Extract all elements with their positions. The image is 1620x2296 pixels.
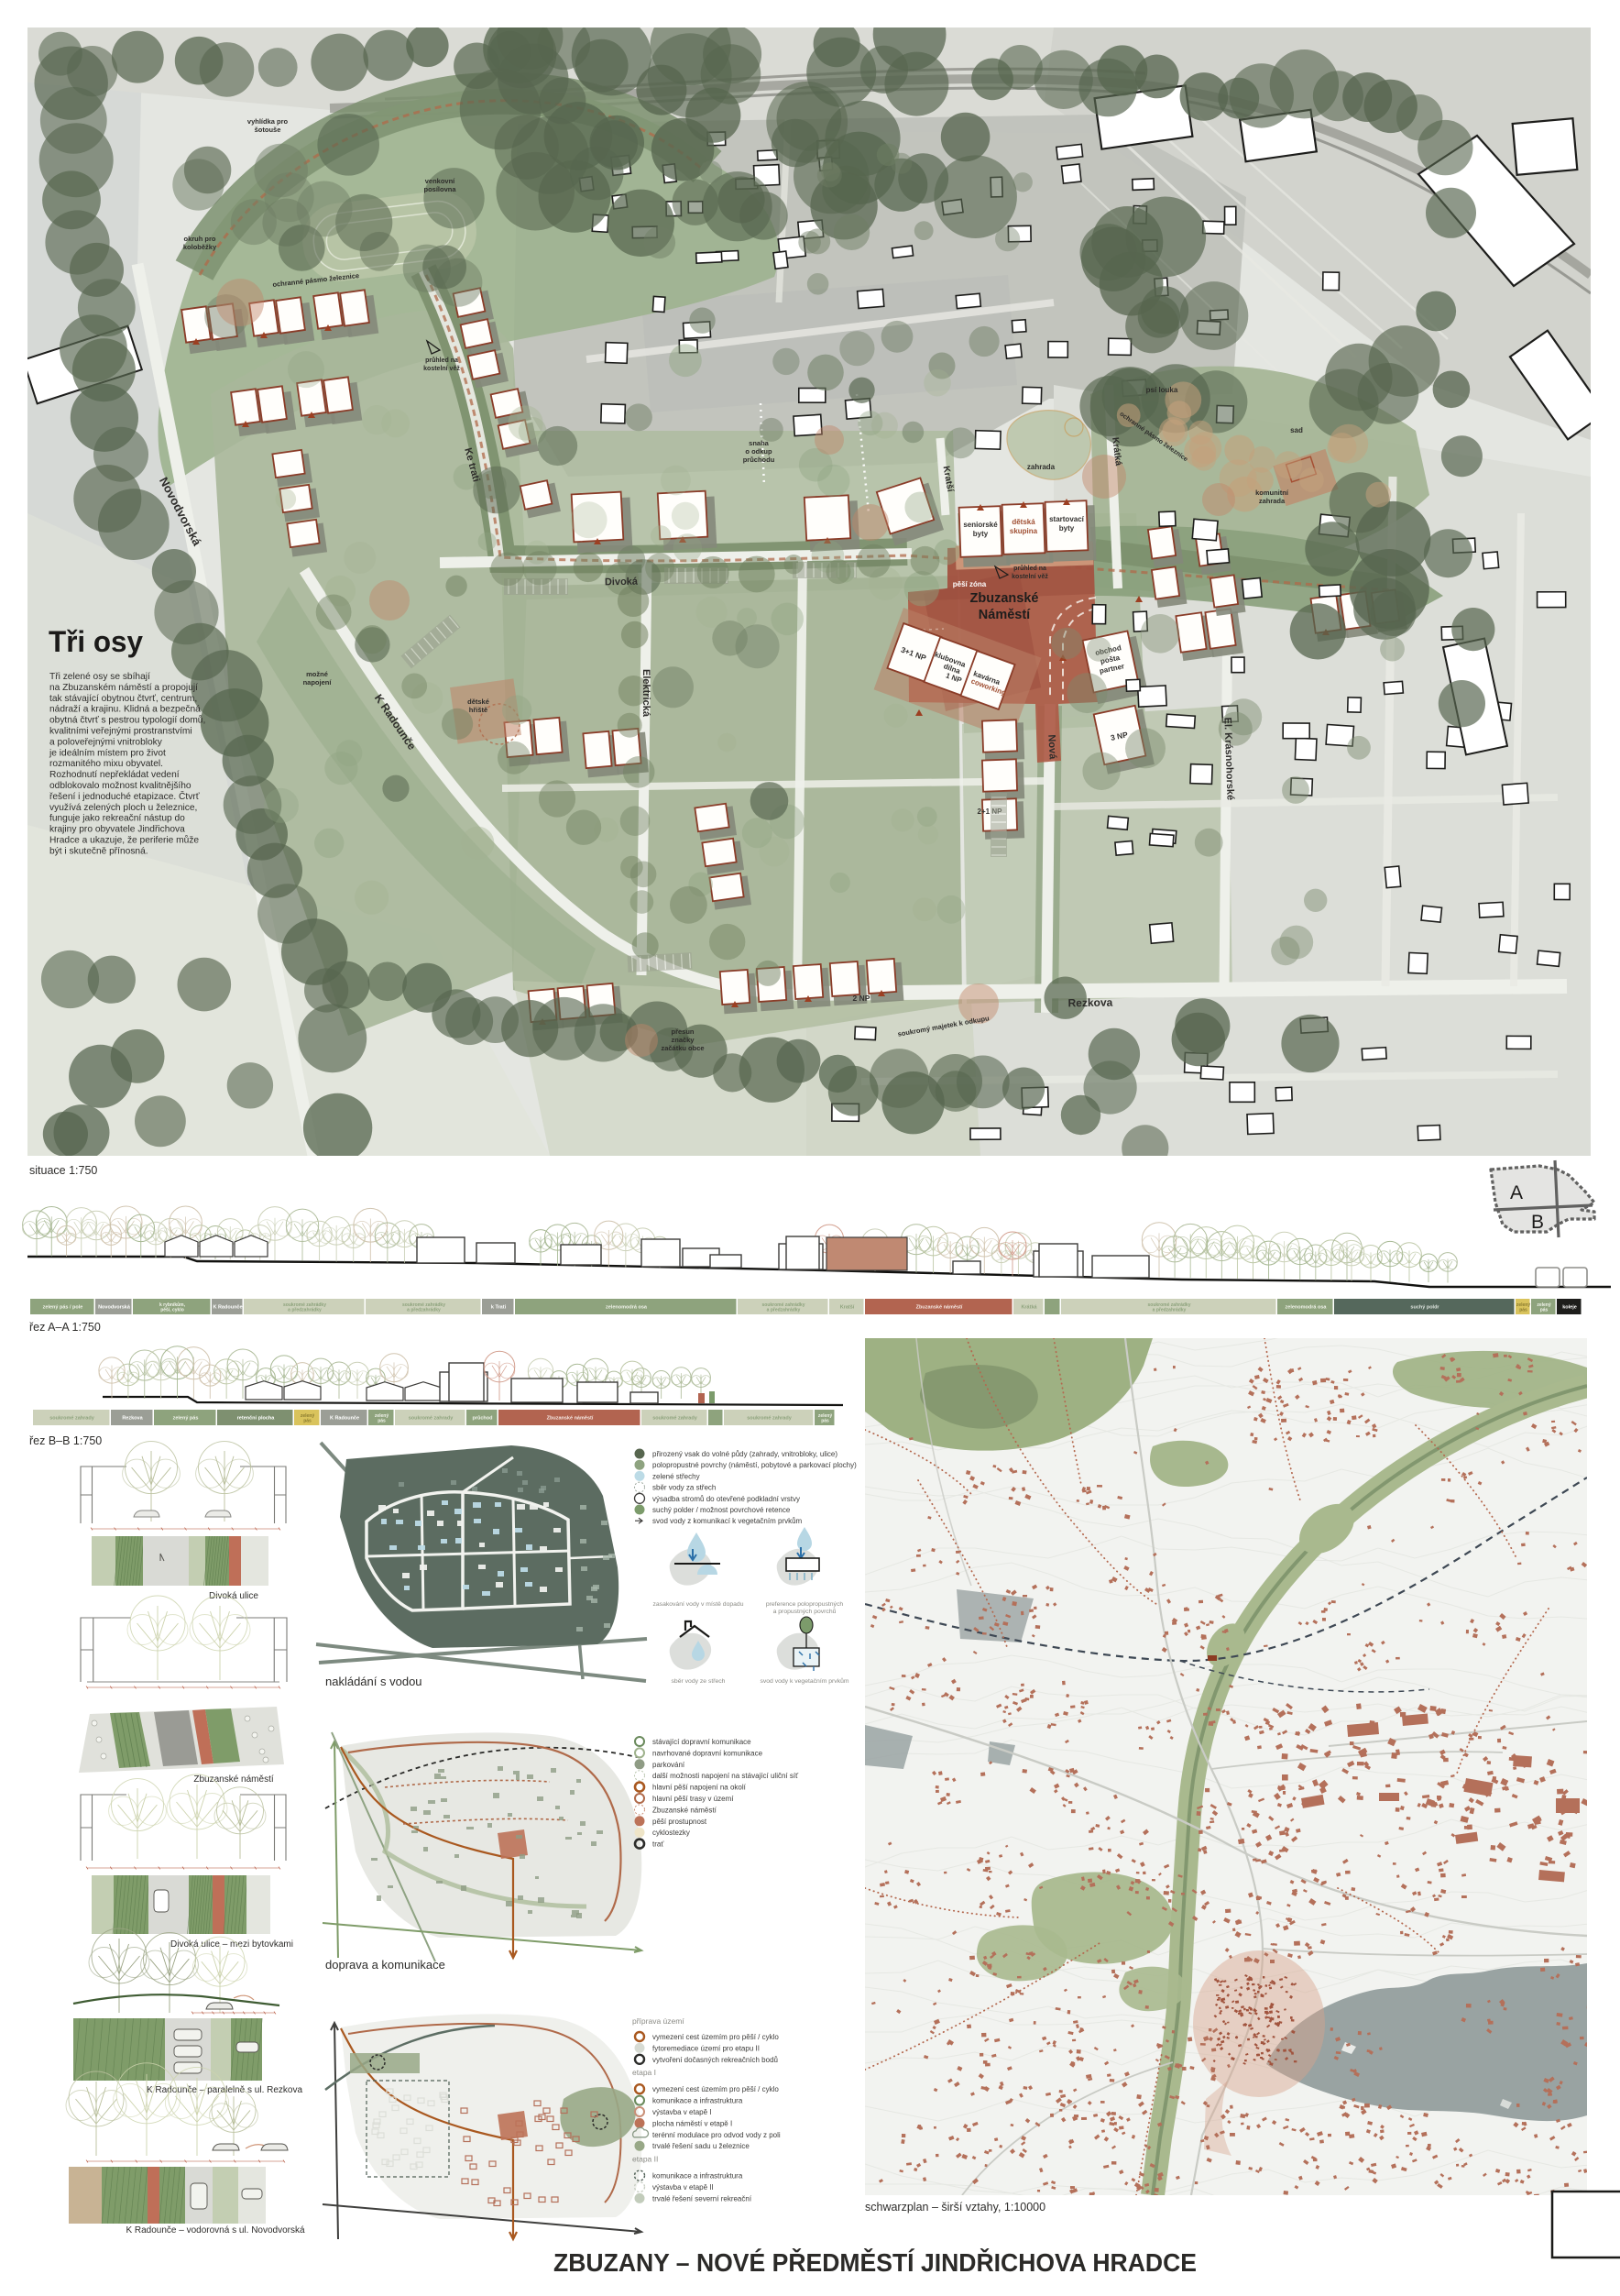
svg-text:být i skutečně přínosná.: být i skutečně přínosná.: [49, 846, 148, 856]
svg-text:zelenomodrá osa: zelenomodrá osa: [1286, 1305, 1328, 1311]
svg-text:Elektrická: Elektrická: [640, 669, 651, 718]
svg-text:a poloveřejnými vnitrobloky: a poloveřejnými vnitrobloky: [49, 737, 163, 747]
svg-text:navrhované dopravní komunikace: navrhované dopravní komunikace: [652, 1749, 763, 1757]
svg-text:seniorské: seniorské: [963, 521, 998, 529]
svg-text:tak stávající obytnou čtvrť, c: tak stávající obytnou čtvrť, centrum,: [49, 694, 197, 704]
svg-text:psí louka: psí louka: [1146, 386, 1178, 394]
svg-text:pás: pás: [303, 1419, 312, 1424]
svg-text:K Radounče – vodorovná s ul. N: K Radounče – vodorovná s ul. Novodvorská: [126, 2225, 305, 2236]
svg-text:Tři osy: Tři osy: [49, 625, 143, 658]
svg-text:průhled na: průhled na: [425, 357, 458, 364]
svg-text:funguje jako rekreační nástup: funguje jako rekreační nástup do: [49, 814, 185, 824]
svg-text:Novodvorská: Novodvorská: [98, 1305, 131, 1311]
svg-text:a předzahrádky: a předzahrádky: [767, 1308, 801, 1313]
svg-text:svod vody z komunikací k veget: svod vody z komunikací k vegetačním prvk…: [652, 1517, 803, 1525]
svg-text:příprava území: příprava území: [632, 2016, 684, 2026]
svg-text:zelený pás / pole: zelený pás / pole: [43, 1305, 83, 1311]
svg-text:krajiny pro obyvatele Jindřich: krajiny pro obyvatele Jindřichova: [49, 825, 185, 835]
svg-text:trvalé řešení sadu u železnice: trvalé řešení sadu u železnice: [652, 2142, 750, 2150]
svg-text:průchodu: průchodu: [743, 456, 775, 464]
svg-text:soukromé zahrady: soukromé zahrady: [652, 1416, 698, 1422]
svg-text:Rozhodnutí nepřekládat vedení: Rozhodnutí nepřekládat vedení: [49, 770, 180, 780]
svg-text:k Trati: k Trati: [491, 1305, 507, 1311]
svg-text:cyklostezky: cyklostezky: [652, 1829, 690, 1837]
svg-text:Krátká: Krátká: [1021, 1305, 1037, 1311]
svg-text:suchý poldr: suchý poldr: [1410, 1305, 1439, 1311]
svg-text:a předzahrádky: a předzahrádky: [407, 1308, 441, 1313]
svg-text:odblokovalo možnost kvalitnějš: odblokovalo možnost kvalitnějšího: [49, 781, 192, 791]
svg-text:preference polopropustných: preference polopropustných: [766, 1601, 843, 1608]
svg-text:soukromé zahrady: soukromé zahrady: [747, 1416, 793, 1422]
svg-text:komunikace a infrastruktura: komunikace a infrastruktura: [652, 2097, 743, 2105]
svg-text:snaha: snaha: [749, 439, 770, 447]
svg-text:plocha náměstí v etapě I: plocha náměstí v etapě I: [652, 2119, 732, 2127]
svg-text:řez A–A 1:750: řez A–A 1:750: [29, 1321, 101, 1334]
svg-text:retenční plocha: retenční plocha: [237, 1416, 276, 1422]
svg-text:pás: pás: [1519, 1308, 1527, 1313]
svg-text:sad: sad: [1290, 426, 1303, 434]
svg-text:komunikace a infrastruktura: komunikace a infrastruktura: [652, 2172, 743, 2181]
svg-text:koleje: koleje: [1562, 1305, 1577, 1311]
svg-text:etapa I: etapa I: [632, 2068, 656, 2077]
svg-text:přirozený vsak do volné půdy (: přirozený vsak do volné půdy (zahrady, v…: [652, 1450, 837, 1458]
svg-text:hlavní pěší napojení na okolí: hlavní pěší napojení na okolí: [652, 1784, 747, 1792]
svg-text:průhled na: průhled na: [1013, 565, 1046, 572]
svg-text:venkovní: venkovní: [425, 177, 455, 185]
svg-text:Zbuzanské náměstí: Zbuzanské náměstí: [547, 1416, 594, 1422]
svg-text:hlavní pěší trasy v území: hlavní pěší trasy v území: [652, 1795, 734, 1803]
svg-text:K Radounče: K Radounče: [330, 1416, 359, 1422]
svg-text:přesun: přesun: [671, 1027, 694, 1036]
svg-text:Zbuzanské: Zbuzanské: [970, 591, 1039, 606]
svg-text:pás: pás: [1540, 1308, 1549, 1313]
svg-text:Divoká: Divoká: [605, 577, 639, 588]
svg-text:dětské: dětské: [467, 698, 489, 706]
svg-text:Náměstí: Náměstí: [979, 608, 1031, 622]
svg-text:Tři zelené osy se sbíhají: Tři zelené osy se sbíhají: [49, 672, 150, 682]
svg-text:využívá zelených ploch u želez: využívá zelených ploch u železnice,: [49, 803, 197, 813]
svg-text:obytná čtvrť s pestrou typolog: obytná čtvrť s pestrou typologií domů,: [49, 715, 205, 726]
svg-text:zelený pás: zelený pás: [173, 1416, 199, 1422]
svg-text:2 NP: 2 NP: [853, 994, 870, 1003]
svg-text:a propustných povrchů: a propustných povrchů: [773, 1608, 837, 1615]
svg-text:schwarzplan – širší vztahy, 1:: schwarzplan – širší vztahy, 1:10000: [865, 2201, 1045, 2214]
svg-text:K Radounče: K Radounče: [213, 1305, 242, 1311]
svg-text:ZBUZANY – NOVÉ PŘEDMĚSTÍ JINDŘ: ZBUZANY – NOVÉ PŘEDMĚSTÍ JINDŘICHOVA HRA…: [553, 2248, 1197, 2277]
svg-text:doprava a komunikace: doprava a komunikace: [325, 1958, 445, 1972]
svg-text:řešení i jednoduché etapizace.: řešení i jednoduché etapizace. Čtvrť: [49, 790, 200, 802]
svg-text:a předzahrádky: a předzahrádky: [288, 1308, 322, 1313]
svg-text:vytvoření dočasných rekreačníc: vytvoření dočasných rekreačních bodů: [652, 2056, 778, 2064]
svg-text:komunitní: komunitní: [1255, 489, 1289, 497]
svg-text:koloběžky: koloběžky: [183, 243, 217, 251]
svg-text:zasakování vody v místě dopadu: zasakování vody v místě dopadu: [653, 1601, 744, 1608]
svg-text:nádraží a krajinu. Klidná a be: nádraží a krajinu. Klidná a bezpečná: [49, 705, 201, 715]
svg-text:možné: možné: [306, 670, 328, 678]
svg-text:a předzahrádky: a předzahrádky: [1153, 1308, 1187, 1313]
svg-text:zahrada: zahrada: [1027, 463, 1056, 471]
svg-text:stávající dopravní komunikace: stávající dopravní komunikace: [652, 1738, 751, 1746]
svg-text:pěší, cyklo: pěší, cyklo: [160, 1308, 184, 1313]
svg-text:fytoremediace území pro etapu: fytoremediace území pro etapu II: [652, 2044, 760, 2052]
svg-text:terénní modulace pro odvod vod: terénní modulace pro odvod vody z poli: [652, 2131, 781, 2139]
svg-text:polopropustné povrchy (náměstí: polopropustné povrchy (náměstí, pobytové…: [652, 1461, 857, 1469]
svg-text:napojení: napojení: [303, 678, 333, 687]
svg-text:Zbuzanské náměstí: Zbuzanské náměstí: [652, 1806, 717, 1814]
svg-text:zahrada: zahrada: [1259, 497, 1286, 505]
svg-text:Kratší: Kratší: [840, 1305, 855, 1311]
svg-text:výstavba v etapě I: výstavba v etapě I: [652, 2108, 711, 2116]
svg-text:značky: značky: [671, 1036, 695, 1044]
svg-text:byty: byty: [1059, 524, 1075, 533]
svg-text:průchod: průchod: [473, 1415, 493, 1422]
svg-text:suchý polder / možnost povrcho: suchý polder / možnost povrchové retence: [652, 1506, 791, 1514]
svg-text:na Zbuzanském náměstí a propoj: na Zbuzanském náměstí a propojují: [49, 683, 198, 693]
svg-text:vymezení cest územím pro pěší: vymezení cest územím pro pěší / cyklo: [652, 2033, 779, 2041]
svg-text:svod vody k vegetačním prvkům: svod vody k vegetačním prvkům: [760, 1677, 848, 1685]
svg-text:B: B: [1531, 1212, 1544, 1233]
svg-text:kostelní věž: kostelní věž: [423, 366, 460, 372]
svg-text:rozmanitého mixu obyvatel.: rozmanitého mixu obyvatel.: [49, 759, 163, 769]
svg-text:byty: byty: [973, 530, 989, 538]
svg-text:skupina: skupina: [1010, 527, 1038, 535]
svg-text:pás: pás: [378, 1419, 386, 1424]
svg-text:pěší zóna: pěší zóna: [953, 580, 987, 588]
svg-text:Rezkova: Rezkova: [1067, 996, 1112, 1010]
svg-text:vymezení cest územím pro pěší: vymezení cest územím pro pěší / cyklo: [652, 2085, 779, 2093]
svg-text:okruh pro: okruh pro: [184, 235, 216, 243]
svg-text:A: A: [1510, 1182, 1523, 1203]
svg-text:začátku obce: začátku obce: [661, 1044, 704, 1052]
svg-text:pěší prostupnost: pěší prostupnost: [652, 1818, 707, 1826]
svg-text:soukromé zahrady: soukromé zahrady: [49, 1416, 95, 1422]
svg-text:řez B–B 1:750: řez B–B 1:750: [29, 1434, 102, 1447]
svg-text:situace 1:750: situace 1:750: [29, 1164, 97, 1177]
svg-text:šotouše: šotouše: [255, 126, 281, 134]
svg-text:Nová: Nová: [1045, 734, 1057, 760]
svg-text:pás: pás: [821, 1419, 829, 1424]
svg-text:další možnosti napojení na stá: další možnosti napojení na stávající uli…: [652, 1772, 799, 1780]
svg-text:zelenomodrá osa: zelenomodrá osa: [606, 1305, 648, 1311]
svg-text:dětská: dětská: [1012, 518, 1035, 526]
svg-text:Zbuzanské náměstí: Zbuzanské náměstí: [916, 1305, 963, 1311]
svg-text:kvalitními veřejnými prostrans: kvalitními veřejnými prostranstvími: [49, 727, 192, 737]
svg-text:trvalé řešení severní rekreačn: trvalé řešení severní rekreační: [652, 2194, 752, 2203]
svg-text:Rezkova: Rezkova: [122, 1416, 143, 1422]
svg-text:zelené střechy: zelené střechy: [652, 1472, 700, 1480]
svg-text:Hradce a ukazuje, že periferie: Hradce a ukazuje, že periferie může: [49, 835, 199, 846]
svg-text:sběr vody za střech: sběr vody za střech: [652, 1484, 716, 1492]
svg-text:etapa II: etapa II: [632, 2155, 658, 2164]
svg-text:startovací: startovací: [1049, 515, 1085, 523]
svg-text:nakládání s vodou: nakládání s vodou: [325, 1675, 422, 1688]
svg-text:kostelní věž: kostelní věž: [1012, 574, 1048, 580]
svg-text:soukromé zahrady: soukromé zahrady: [409, 1416, 454, 1422]
svg-text:o odkup: o odkup: [745, 447, 772, 456]
svg-text:výsadba stromů do otevřené pod: výsadba stromů do otevřené podkladní vrs…: [652, 1495, 800, 1503]
svg-text:parkování: parkování: [652, 1761, 685, 1769]
svg-text:je ideálním místem pro život: je ideálním místem pro život: [49, 748, 166, 758]
svg-text:hřiště: hřiště: [469, 706, 487, 714]
svg-text:výstavba v etapě II: výstavba v etapě II: [652, 2183, 714, 2192]
svg-text:sběr vody ze střech: sběr vody ze střech: [672, 1678, 726, 1685]
svg-text:trať: trať: [652, 1840, 664, 1849]
svg-text:vyhlídka pro: vyhlídka pro: [247, 117, 289, 126]
svg-text:posílovna: posílovna: [423, 185, 456, 193]
